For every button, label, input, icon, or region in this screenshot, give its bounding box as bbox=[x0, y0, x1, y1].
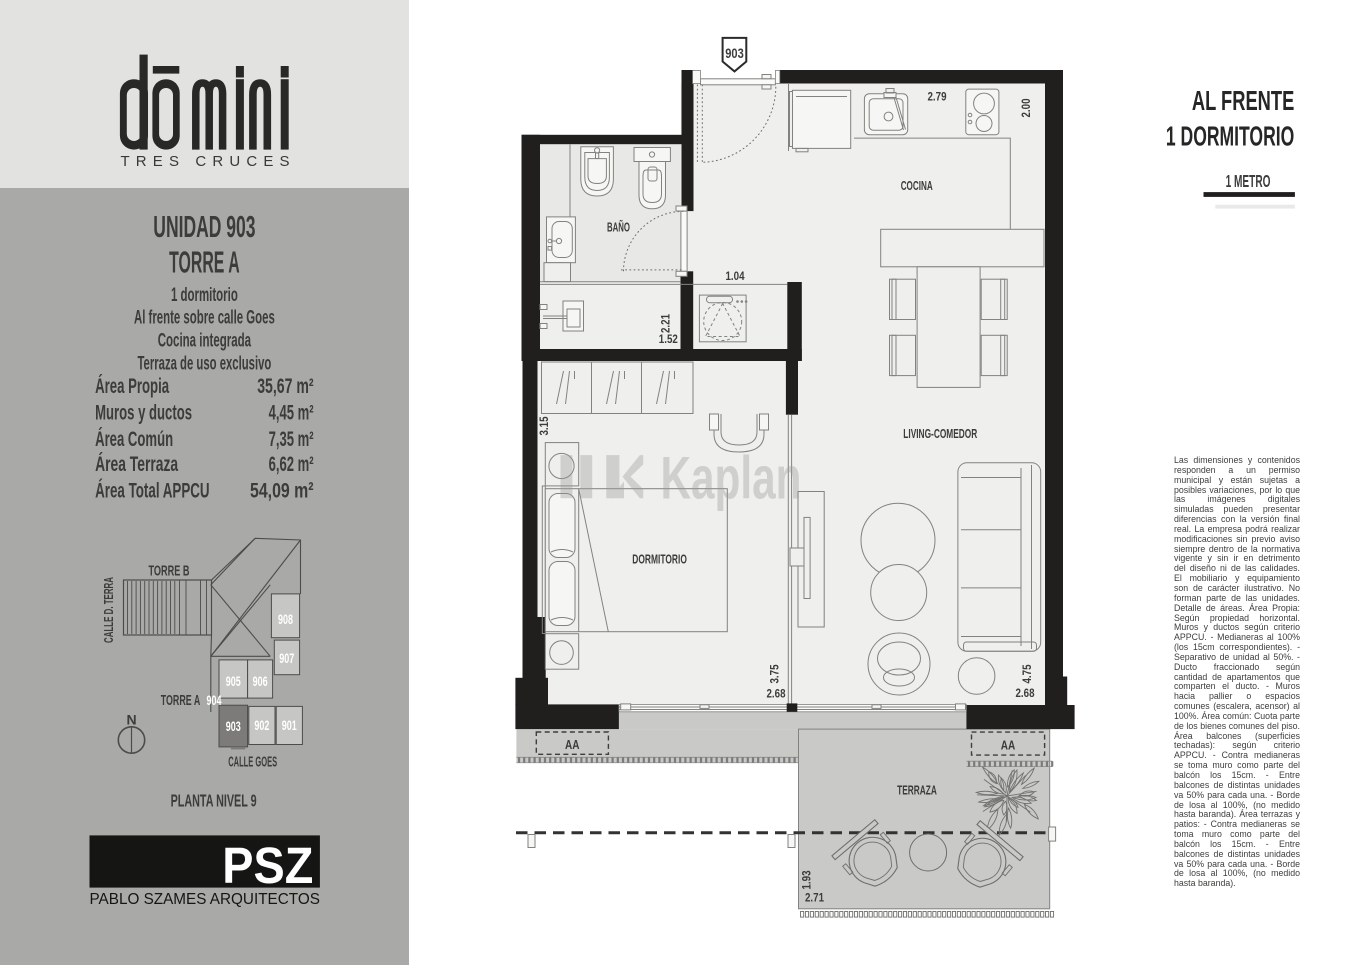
svg-text:1.93: 1.93 bbox=[800, 870, 814, 889]
svg-text:6,62 m²: 6,62 m² bbox=[269, 453, 314, 476]
svg-text:903: 903 bbox=[226, 718, 241, 734]
svg-text:DORMITORIO: DORMITORIO bbox=[632, 552, 687, 567]
svg-text:35,67 m²: 35,67 m² bbox=[257, 375, 313, 398]
svg-text:1 METRO: 1 METRO bbox=[1226, 171, 1271, 191]
svg-text:BAÑO: BAÑO bbox=[607, 220, 630, 235]
svg-text:N: N bbox=[126, 712, 136, 728]
svg-text:907: 907 bbox=[279, 650, 294, 666]
svg-text:TRES CRUCES: TRES CRUCES bbox=[121, 153, 290, 170]
svg-text:901: 901 bbox=[282, 717, 297, 733]
svg-text:Kaplan: Kaplan bbox=[661, 444, 802, 511]
svg-text:CALLE GOES: CALLE GOES bbox=[228, 755, 277, 771]
svg-text:1 DORMITORIO: 1 DORMITORIO bbox=[1166, 121, 1294, 152]
svg-text:TERRAZA: TERRAZA bbox=[897, 783, 937, 798]
svg-text:905: 905 bbox=[226, 673, 241, 689]
svg-text:3.75: 3.75 bbox=[768, 664, 782, 683]
svg-text:Al frente sobre calle Goes: Al frente sobre calle Goes bbox=[134, 308, 275, 329]
svg-text:TORRE A: TORRE A bbox=[169, 245, 240, 280]
svg-text:Muros y ductos: Muros y ductos bbox=[95, 402, 192, 425]
svg-text:CALLE D. TERRA: CALLE D. TERRA bbox=[102, 577, 116, 643]
svg-text:PLANTA NIVEL 9: PLANTA NIVEL 9 bbox=[171, 791, 257, 811]
svg-text:TORRE A: TORRE A bbox=[161, 693, 201, 709]
svg-text:Área Total APPCU: Área Total APPCU bbox=[95, 478, 209, 503]
svg-text:2.71: 2.71 bbox=[805, 891, 824, 905]
svg-text:COCINA: COCINA bbox=[901, 178, 933, 193]
svg-text:Área Terraza: Área Terraza bbox=[95, 453, 178, 476]
svg-text:2.68: 2.68 bbox=[767, 687, 786, 701]
svg-text:2.00: 2.00 bbox=[1019, 98, 1033, 117]
svg-text:3.15: 3.15 bbox=[537, 416, 551, 435]
svg-text:AA: AA bbox=[1001, 739, 1016, 753]
svg-text:7,35 m²: 7,35 m² bbox=[269, 428, 314, 451]
svg-text:Área Propia: Área Propia bbox=[95, 375, 169, 398]
svg-text:4,45 m²: 4,45 m² bbox=[269, 402, 314, 425]
svg-text:LIVING-COMEDOR: LIVING-COMEDOR bbox=[903, 426, 977, 441]
svg-text:904: 904 bbox=[207, 692, 222, 708]
svg-text:908: 908 bbox=[278, 611, 293, 627]
svg-text:2.68: 2.68 bbox=[1016, 686, 1035, 700]
svg-text:Área Común: Área Común bbox=[95, 428, 173, 451]
svg-text:UNIDAD 903: UNIDAD 903 bbox=[153, 209, 255, 244]
svg-text:2.21: 2.21 bbox=[659, 314, 673, 333]
svg-text:AL FRENTE: AL FRENTE bbox=[1192, 85, 1294, 116]
svg-text:PABLO SZAMES ARQUITECTOS: PABLO SZAMES ARQUITECTOS bbox=[90, 891, 320, 908]
svg-text:903: 903 bbox=[725, 46, 744, 61]
svg-text:4.75: 4.75 bbox=[1020, 664, 1034, 683]
svg-text:Terraza de uso exclusivo: Terraza de uso exclusivo bbox=[137, 354, 271, 375]
svg-text:PSZ: PSZ bbox=[222, 837, 313, 894]
svg-text:1 dormitorio: 1 dormitorio bbox=[171, 285, 238, 306]
svg-text:54,09 m²: 54,09 m² bbox=[250, 479, 314, 503]
svg-text:Cocina integrada: Cocina integrada bbox=[158, 331, 252, 352]
svg-text:2.79: 2.79 bbox=[928, 90, 947, 104]
svg-text:906: 906 bbox=[253, 673, 268, 689]
svg-text:TORRE B: TORRE B bbox=[149, 564, 190, 580]
svg-text:1.52: 1.52 bbox=[659, 332, 678, 346]
svg-text:902: 902 bbox=[254, 717, 269, 733]
svg-text:1.04: 1.04 bbox=[726, 269, 745, 283]
svg-text:AA: AA bbox=[565, 738, 580, 752]
